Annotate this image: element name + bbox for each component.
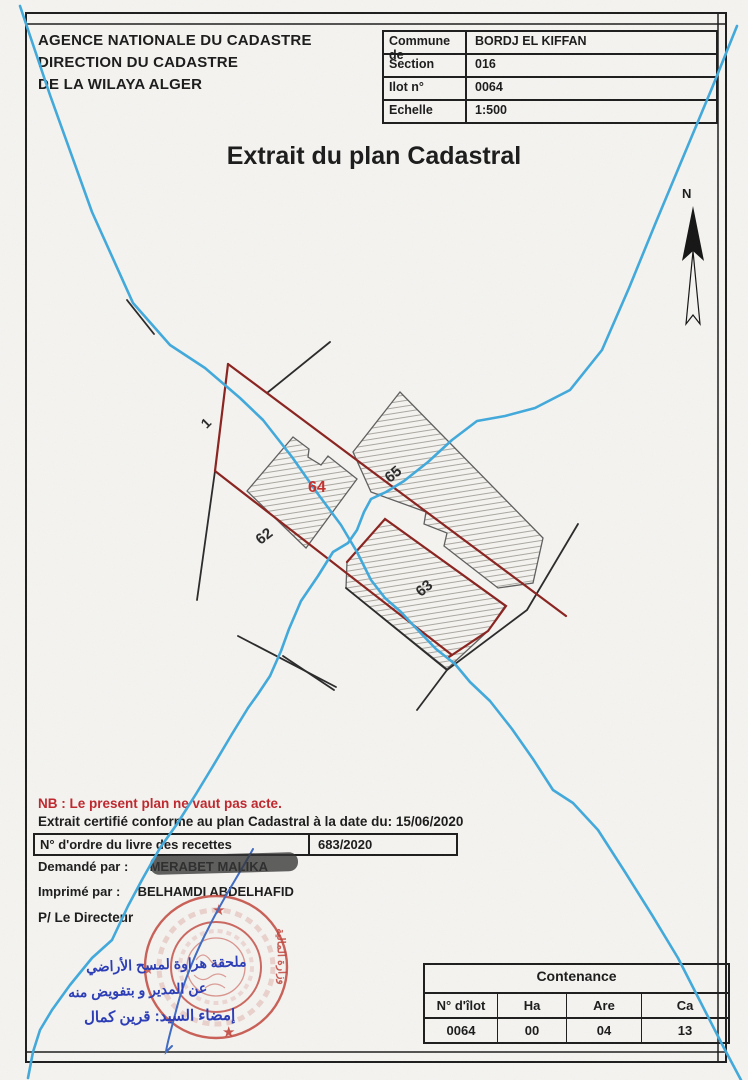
contenance-header-row: N° d'îlot Ha Are Ca (425, 994, 728, 1019)
plot-info-table: Commune de BORDJ EL KIFFAN Section 016 I… (382, 30, 718, 124)
svg-text:★: ★ (212, 902, 225, 919)
svg-text:★: ★ (222, 1024, 235, 1041)
info-value-ilot: 0064 (467, 78, 716, 99)
recettes-table: N° d'ordre du livre des recettes 683/202… (33, 833, 458, 856)
certification-line: Extrait certifié conforme au plan Cadast… (38, 814, 463, 829)
contenance-header-are: Are (567, 994, 642, 1017)
annex-arabic-line-1: ملحقة هراوة لمسح الأراضي (86, 953, 247, 976)
blue-line-northeast-southwest (28, 26, 737, 1078)
director-line: P/ Le Directeur (38, 910, 133, 925)
info-value-commune: BORDJ EL KIFFAN (467, 32, 716, 53)
info-label-ilot: Ilot n° (384, 78, 467, 99)
contenance-header-ilot: N° d'îlot (425, 994, 498, 1017)
page-title: Extrait du plan Cadastral (0, 142, 748, 171)
info-label-section: Section (384, 55, 467, 76)
parcel-label-62: 62 (253, 525, 277, 549)
building-footprints (247, 392, 543, 669)
black-boundary-lines (127, 300, 578, 710)
requested-by-row: Demandé par : MERABET MALIKA (38, 859, 268, 874)
parcel-label-1: 1 (197, 415, 214, 432)
building-65 (353, 392, 543, 588)
table-row: Echelle 1:500 (384, 101, 716, 124)
north-label: N (682, 186, 691, 201)
table-row: Commune de BORDJ EL KIFFAN (384, 32, 716, 55)
contenance-value-ca: 13 (642, 1019, 728, 1042)
info-value-section: 016 (467, 55, 716, 76)
parcel-label-65: 65 (381, 463, 405, 487)
annex-arabic-line-3: إمضاء السيد: قرين كمال (84, 1006, 235, 1027)
annex-arabic-line-2: عن المدير و بتفويض منه (68, 980, 208, 1002)
recettes-value: 683/2020 (310, 835, 456, 854)
stamp-ministry-text: وزارة المالية (274, 928, 289, 985)
north-arrow-icon (682, 206, 704, 324)
agency-line-2: DIRECTION DU CADASTRE (38, 52, 312, 74)
parcel-label-63: 63 (412, 577, 436, 601)
contenance-title: Contenance (425, 965, 728, 994)
red-parcel-boundaries (215, 364, 566, 657)
table-row: Ilot n° 0064 (384, 78, 716, 101)
agency-line-3: DE LA WILAYA ALGER (38, 74, 312, 96)
printed-by-label: Imprimé par : (38, 884, 120, 899)
info-label-echelle: Echelle (384, 101, 467, 122)
parcel-label-64: 64 (308, 479, 326, 497)
printed-by-value: BELHAMDI ABDELHAFID (138, 884, 294, 899)
contenance-table: Contenance N° d'îlot Ha Are Ca 0064 00 0… (423, 963, 730, 1044)
agency-header: AGENCE NATIONALE DU CADASTRE DIRECTION D… (38, 30, 312, 96)
requested-by-label: Demandé par : (38, 859, 128, 874)
info-label-commune: Commune de (384, 32, 467, 53)
agency-line-1: AGENCE NATIONALE DU CADASTRE (38, 30, 312, 52)
cadastral-extract-page: AGENCE NATIONALE DU CADASTRE DIRECTION D… (0, 0, 748, 1080)
contenance-value-ilot: 0064 (425, 1019, 498, 1042)
printed-by-row: Imprimé par : BELHAMDI ABDELHAFID (38, 884, 294, 899)
contenance-value-row: 0064 00 04 13 (425, 1019, 728, 1042)
requested-by-value: MERABET MALIKA (150, 859, 268, 874)
contenance-value-are: 04 (567, 1019, 642, 1042)
contenance-header-ca: Ca (642, 994, 728, 1017)
info-value-echelle: 1:500 (467, 101, 716, 122)
contenance-value-ha: 00 (498, 1019, 567, 1042)
table-row: Section 016 (384, 55, 716, 78)
recettes-label: N° d'ordre du livre des recettes (35, 835, 310, 854)
nb-warning: NB : Le present plan ne vaut pas acte. (38, 796, 282, 811)
contenance-header-ha: Ha (498, 994, 567, 1017)
